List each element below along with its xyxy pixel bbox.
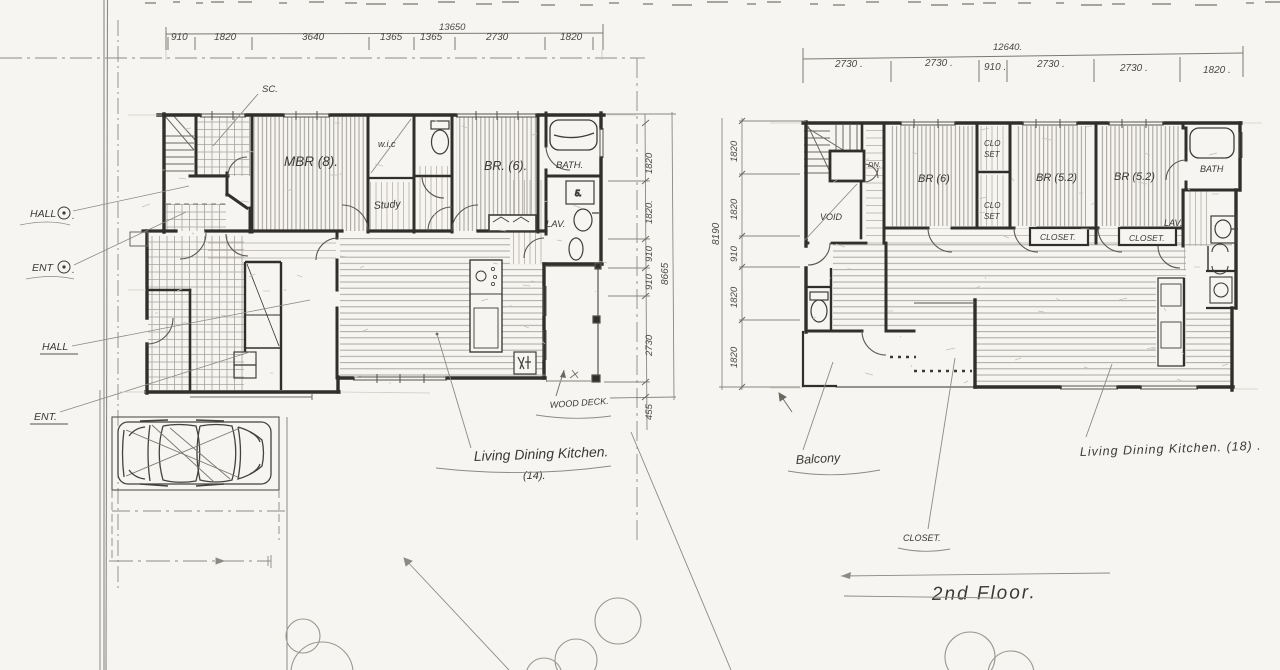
- svg-text:8665: 8665: [660, 262, 671, 285]
- svg-text:.: .: [72, 211, 75, 222]
- svg-text:1820: 1820: [644, 152, 655, 174]
- svg-text:Study: Study: [373, 198, 401, 212]
- svg-text:1365: 1365: [420, 32, 443, 43]
- svg-text:CLO: CLO: [984, 139, 1000, 148]
- svg-text:w.i.c: w.i.c: [378, 139, 396, 149]
- svg-text:1820 .: 1820 .: [1203, 65, 1231, 76]
- svg-text:5.: 5.: [575, 189, 582, 198]
- svg-text:LAV.: LAV.: [546, 219, 565, 230]
- svg-text:910: 910: [644, 245, 655, 262]
- svg-text:2730: 2730: [485, 32, 509, 43]
- svg-text:2730 .: 2730 .: [1036, 59, 1065, 70]
- svg-text:1820: 1820: [729, 346, 740, 368]
- svg-text:2730 .: 2730 .: [1119, 63, 1148, 74]
- svg-text:1820: 1820: [214, 32, 237, 43]
- svg-text:8190: 8190: [711, 222, 722, 245]
- svg-text:HALL: HALL: [42, 341, 68, 353]
- svg-text:BR (5.2): BR (5.2): [1114, 171, 1155, 183]
- svg-text:1820: 1820: [560, 32, 583, 43]
- svg-text:910: 910: [171, 32, 188, 43]
- svg-text:1820: 1820: [729, 286, 740, 308]
- svg-text:HALL: HALL: [30, 208, 56, 220]
- svg-text:ENT: ENT: [32, 262, 55, 274]
- svg-text:.: .: [72, 265, 75, 276]
- svg-text:MBR (8).: MBR (8).: [284, 154, 338, 169]
- svg-text:LAV.: LAV.: [1164, 218, 1182, 228]
- svg-text:910: 910: [729, 245, 740, 262]
- svg-text:BATH.: BATH.: [556, 160, 583, 171]
- svg-text:DN.: DN.: [868, 160, 881, 169]
- svg-text:BR (6): BR (6): [918, 173, 950, 185]
- svg-text:13650: 13650: [439, 22, 466, 33]
- svg-text:CLO: CLO: [984, 201, 1000, 210]
- svg-text:2nd Floor.: 2nd Floor.: [931, 582, 1037, 605]
- svg-text:BATH: BATH: [1200, 164, 1224, 174]
- svg-text:12640.: 12640.: [993, 42, 1022, 53]
- svg-text:VOID: VOID: [820, 212, 843, 222]
- svg-text:BR (5.2): BR (5.2): [1036, 172, 1077, 184]
- svg-text:910: 910: [644, 273, 655, 290]
- svg-text:2730 .: 2730 .: [834, 59, 863, 70]
- svg-text:2730 .: 2730 .: [924, 58, 953, 69]
- svg-text:BR. (6).: BR. (6).: [484, 159, 527, 173]
- svg-text:1820.: 1820.: [644, 200, 655, 224]
- svg-text:SET: SET: [984, 212, 1001, 221]
- svg-text:CLOSET.: CLOSET.: [903, 533, 941, 543]
- svg-text:1820: 1820: [729, 140, 740, 162]
- svg-text:2730: 2730: [644, 334, 655, 357]
- svg-text:1365: 1365: [380, 32, 403, 43]
- svg-text:SC.: SC.: [262, 84, 278, 95]
- svg-text:3640: 3640: [302, 32, 325, 43]
- svg-text:CLOSET.: CLOSET.: [1040, 232, 1076, 242]
- svg-text:455: 455: [644, 403, 655, 420]
- svg-text:CLOSET.: CLOSET.: [1129, 233, 1165, 243]
- svg-text:Balcony: Balcony: [795, 451, 841, 467]
- svg-text:910 .: 910 .: [984, 62, 1006, 73]
- svg-text:1820: 1820: [729, 198, 740, 220]
- svg-text:SET: SET: [984, 150, 1001, 159]
- svg-text:ENT.: ENT.: [34, 411, 57, 423]
